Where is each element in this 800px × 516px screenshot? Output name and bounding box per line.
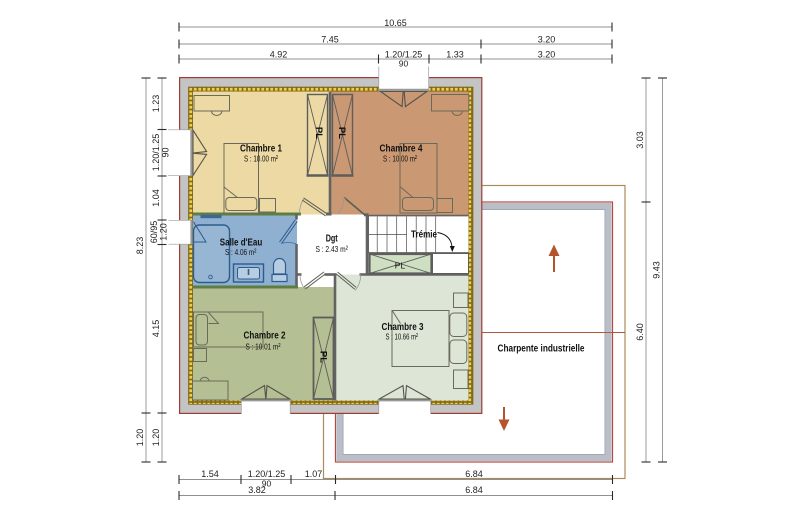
svg-text:Trémie: Trémie (411, 229, 437, 241)
svg-text:1.20/1.25: 1.20/1.25 (151, 134, 161, 172)
svg-text:1.20/1.25: 1.20/1.25 (248, 469, 286, 479)
svg-text:PL: PL (313, 127, 324, 139)
svg-text:6.40: 6.40 (635, 323, 645, 341)
svg-text:1.33: 1.33 (446, 49, 464, 59)
svg-text:1.23: 1.23 (151, 95, 161, 113)
svg-text:90: 90 (399, 58, 409, 68)
svg-text:S : 10.00 m²: S : 10.00 m² (244, 153, 278, 163)
svg-text:PL: PL (336, 127, 347, 139)
svg-text:3.20: 3.20 (538, 49, 556, 59)
svg-text:Charpente industrielle: Charpente industrielle (498, 343, 585, 355)
svg-text:1.20: 1.20 (151, 429, 161, 447)
svg-text:S : 10.00 m²: S : 10.00 m² (383, 153, 417, 163)
svg-text:4.15: 4.15 (151, 320, 161, 338)
svg-text:7.45: 7.45 (321, 35, 339, 45)
svg-text:9.43: 9.43 (652, 261, 662, 279)
svg-text:S : 4.06 m²: S : 4.06 m² (225, 247, 257, 257)
svg-text:8.23: 8.23 (135, 237, 145, 255)
svg-text:1.54: 1.54 (201, 469, 219, 479)
svg-text:1.20: 1.20 (135, 429, 145, 447)
svg-text:Chambre 2: Chambre 2 (244, 330, 286, 342)
svg-text:90: 90 (161, 147, 171, 157)
svg-text:3.82: 3.82 (248, 485, 266, 495)
svg-text:S : 2.43 m²: S : 2.43 m² (315, 244, 348, 254)
svg-text:S : 10.66 m²: S : 10.66 m² (386, 332, 419, 342)
svg-text:3.20: 3.20 (538, 35, 556, 45)
svg-text:Dgt: Dgt (326, 233, 338, 245)
svg-text:1.07: 1.07 (305, 469, 323, 479)
svg-text:60/95: 60/95 (149, 221, 159, 244)
svg-text:PL: PL (318, 351, 329, 363)
svg-text:1.04: 1.04 (151, 189, 161, 207)
svg-text:PL: PL (395, 261, 406, 271)
svg-text:10.65: 10.65 (384, 18, 407, 28)
svg-text:6.84: 6.84 (465, 485, 483, 495)
svg-text:6.84: 6.84 (465, 469, 483, 479)
svg-text:3.03: 3.03 (635, 131, 645, 149)
svg-text:1.20: 1.20 (159, 223, 169, 241)
svg-text:4.92: 4.92 (270, 49, 288, 59)
svg-text:S : 10.01 m²: S : 10.01 m² (246, 342, 281, 352)
